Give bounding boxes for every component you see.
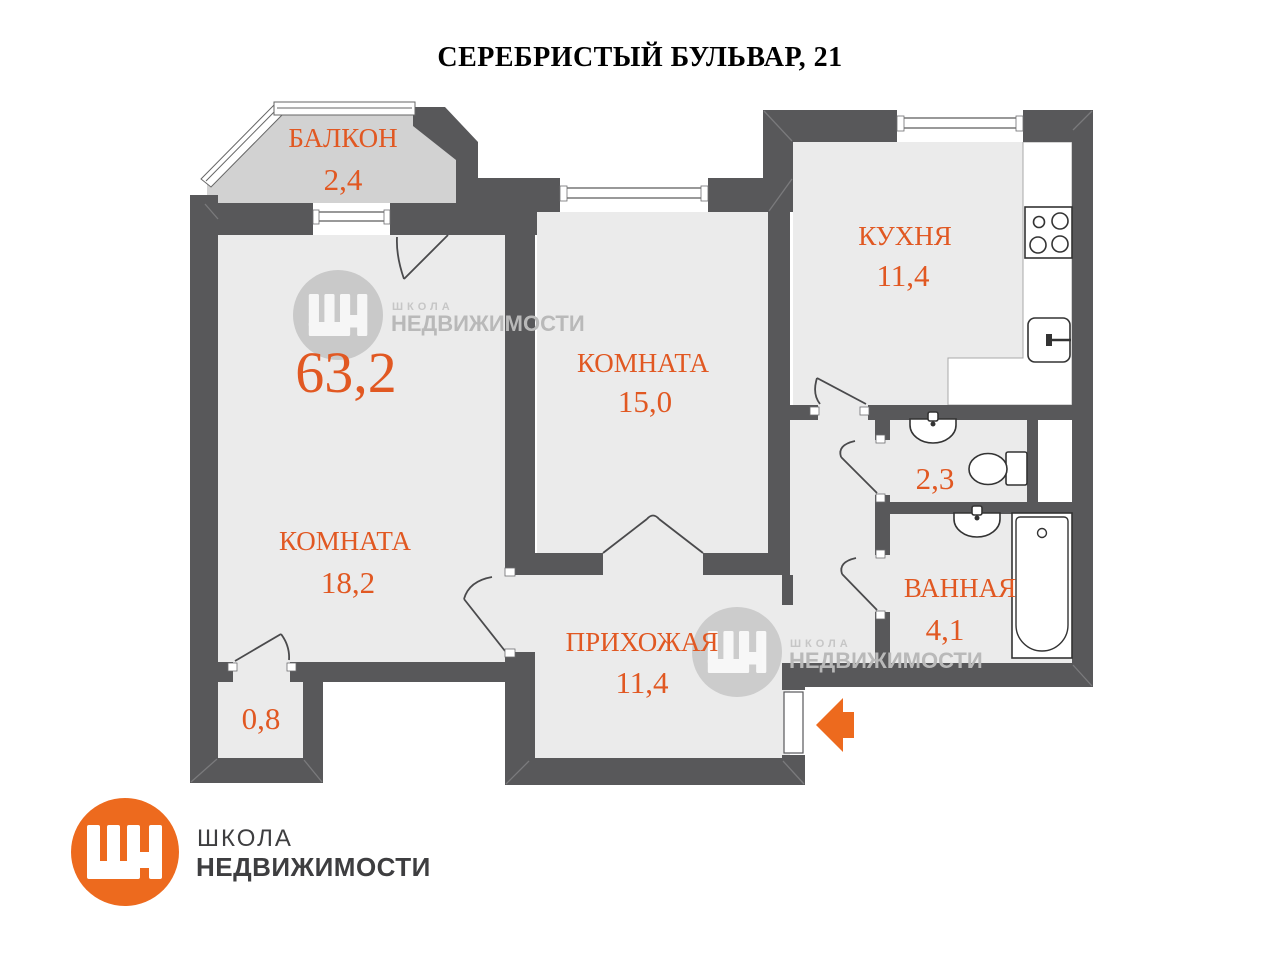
label-kitchen-name: КУХНЯ — [858, 221, 952, 251]
window-room-18 — [313, 203, 390, 235]
toilet-icon — [969, 452, 1027, 485]
floor-plan-page: СЕРЕБРИСТЫЙ БУЛЬВАР, 21 — [0, 0, 1280, 960]
entrance-door — [784, 692, 803, 753]
label-hallway-area: 11,4 — [615, 665, 669, 700]
label-room15-name: КОМНАТА — [577, 348, 710, 378]
label-bathroom-area: 4,1 — [926, 612, 965, 647]
entrance-arrow-icon — [816, 698, 854, 752]
watermark-line2: НЕДВИЖИМОСТИ — [789, 648, 983, 673]
label-kitchen-area: 11,4 — [876, 258, 930, 293]
stove-icon — [1025, 207, 1072, 258]
window-room-15 — [560, 178, 708, 212]
label-total-area: 63,2 — [295, 340, 397, 405]
label-balcony-name: БАЛКОН — [288, 123, 397, 153]
logo-line1: ШКОЛА — [197, 825, 293, 852]
label-wc-area: 2,3 — [916, 461, 955, 496]
label-room18-name: КОМНАТА — [279, 526, 412, 556]
window-kitchen — [897, 110, 1023, 142]
logo-line2: НЕДВИЖИМОСТИ — [196, 852, 431, 882]
bathtub-icon — [1012, 513, 1072, 658]
label-storage-area: 0,8 — [242, 701, 281, 736]
kitchen-sink-icon — [1028, 318, 1071, 362]
label-room18-area: 18,2 — [321, 565, 375, 600]
label-hallway-name: ПРИХОЖАЯ — [566, 627, 719, 657]
watermark-line2: НЕДВИЖИМОСТИ — [391, 311, 585, 336]
label-room15-area: 15,0 — [618, 384, 672, 419]
label-balcony-area: 2,4 — [324, 162, 363, 197]
brand-logo: ШКОЛА НЕДВИЖИМОСТИ — [71, 798, 431, 906]
label-bathroom-name: ВАННАЯ — [904, 573, 1016, 603]
floor-plan: ШКОЛА НЕДВИЖИМОСТИ ШКОЛА НЕДВИЖИМОСТИ БА… — [0, 0, 1280, 960]
